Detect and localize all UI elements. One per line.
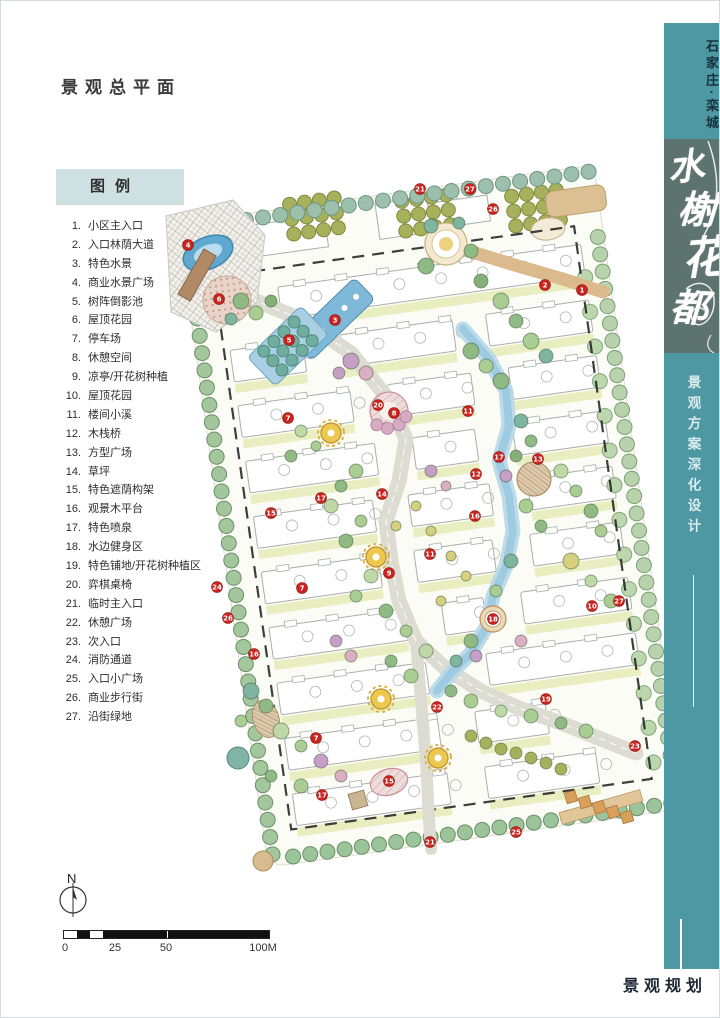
plan-markers: 1234567778910111112131415151616171717181… <box>183 184 641 848</box>
legend-title: 图例 <box>90 169 140 205</box>
svg-text:14: 14 <box>377 491 387 499</box>
legend-item: 7.停车场 <box>59 330 229 349</box>
plan-marker: 22 <box>432 702 443 713</box>
plan-marker: 11 <box>425 549 436 560</box>
svg-text:15: 15 <box>266 510 276 518</box>
legend-item: 22.休憩广场 <box>59 614 229 633</box>
scale-labels: 0 25 50 100M <box>1 942 301 956</box>
svg-text:17: 17 <box>316 495 326 503</box>
legend-list: 1.小区主入口2.入口林荫大道3.特色水景4.商业水景广场5.树阵倒影池6.屋顶… <box>59 217 229 727</box>
project-name-character: 榭 <box>677 190 717 230</box>
plan-marker: 5 <box>284 335 295 346</box>
legend-item: 1.小区主入口 <box>59 217 229 236</box>
plan-marker: 23 <box>630 741 641 752</box>
svg-text:12: 12 <box>471 471 481 479</box>
sidebar-location: 石家庄·栾城 <box>664 39 720 132</box>
svg-text:11: 11 <box>463 408 473 416</box>
svg-text:5: 5 <box>287 337 292 345</box>
svg-text:25: 25 <box>511 829 521 837</box>
legend-item: 8.休憩空间 <box>59 349 229 368</box>
svg-text:18: 18 <box>488 616 498 624</box>
svg-text:7: 7 <box>286 415 291 423</box>
legend-box: 图例 <box>56 169 184 205</box>
legend-item: 4.商业水景广场 <box>59 274 229 293</box>
svg-text:15: 15 <box>384 778 394 786</box>
north-arrow: N <box>57 873 97 919</box>
svg-text:22: 22 <box>432 704 442 712</box>
legend-item: 11.楼间小溪 <box>59 406 229 425</box>
svg-text:7: 7 <box>314 735 319 743</box>
plan-marker: 27 <box>614 596 625 607</box>
project-name-character: 花 <box>681 236 720 283</box>
svg-text:23: 23 <box>630 743 640 751</box>
svg-text:16: 16 <box>249 651 259 659</box>
scale-label: 0 <box>62 942 68 954</box>
legend-item: 17.特色喷泉 <box>59 519 229 538</box>
svg-text:17: 17 <box>317 792 327 800</box>
plan-marker: 25 <box>511 827 522 838</box>
sidebar-split-line <box>680 919 682 969</box>
project-name-character: 都 <box>669 288 708 327</box>
plan-marker: 2 <box>540 280 551 291</box>
svg-text:1: 1 <box>580 287 585 295</box>
svg-text:8: 8 <box>392 410 397 418</box>
compass-icon <box>57 873 97 919</box>
north-label: N <box>67 871 76 886</box>
legend-item: 25.入口小广场 <box>59 670 229 689</box>
legend-item: 2.入口林荫大道 <box>59 236 229 255</box>
site-rotated-group <box>150 149 692 878</box>
plan-marker: 7 <box>297 583 308 594</box>
plan-marker: 12 <box>471 469 482 480</box>
plan-marker: 17 <box>316 493 327 504</box>
legend-item: 15.特色遮荫构架 <box>59 481 229 500</box>
plan-marker: 15 <box>266 508 277 519</box>
plan-marker: 15 <box>384 776 395 787</box>
svg-text:20: 20 <box>373 402 383 410</box>
plan-marker: 21 <box>415 184 426 195</box>
scale-label: 25 <box>109 942 121 954</box>
sidebar-subtitle: 景观方案深化设计 <box>683 375 703 539</box>
scale-label: 100M <box>249 942 277 954</box>
legend-item: 21.临时主入口 <box>59 595 229 614</box>
sidebar: 石家庄·栾城 水榭花都 景观方案深化设计 <box>664 23 720 969</box>
svg-text:19: 19 <box>541 696 551 704</box>
plan-marker: 3 <box>330 315 341 326</box>
legend-item: 26.商业步行街 <box>59 689 229 708</box>
plan-marker: 17 <box>317 790 328 801</box>
footer-label: 景观规划 <box>623 972 707 996</box>
legend-item: 23.次入口 <box>59 633 229 652</box>
svg-text:21: 21 <box>425 839 435 847</box>
svg-text:17: 17 <box>494 454 504 462</box>
legend-item: 19.特色铺地/开花树种植区 <box>59 557 229 576</box>
legend-item: 18.水边健身区 <box>59 538 229 557</box>
plan-marker: 16 <box>470 511 481 522</box>
legend-item: 6.屋顶花园 <box>59 311 229 330</box>
page-title: 景观总平面 <box>61 73 181 98</box>
svg-text:16: 16 <box>470 513 480 521</box>
plan-marker: 26 <box>488 204 499 215</box>
svg-text:11: 11 <box>425 551 435 559</box>
legend-item: 14.草坪 <box>59 463 229 482</box>
legend-item: 13.方型广场 <box>59 444 229 463</box>
svg-text:3: 3 <box>333 317 338 325</box>
plan-marker: 9 <box>384 568 395 579</box>
plan-marker: 1 <box>577 285 588 296</box>
scale-label: 50 <box>160 942 172 954</box>
svg-text:10: 10 <box>587 603 597 611</box>
plan-marker: 16 <box>249 649 260 660</box>
legend-item: 27.沿街绿地 <box>59 708 229 727</box>
sidebar-project-panel: 水榭花都 <box>664 139 720 353</box>
legend-item: 5.树阵倒影池 <box>59 293 229 312</box>
svg-text:7: 7 <box>300 585 305 593</box>
plan-marker: 8 <box>389 408 400 419</box>
legend-item: 10.屋顶花园 <box>59 387 229 406</box>
plan-marker: 11 <box>463 406 474 417</box>
legend-item: 16.观景木平台 <box>59 500 229 519</box>
plan-marker: 19 <box>541 694 552 705</box>
svg-text:2: 2 <box>543 282 548 290</box>
plan-marker: 7 <box>311 733 322 744</box>
scale-bar <box>63 930 270 939</box>
svg-text:9: 9 <box>387 570 392 578</box>
project-name-character: 水 <box>666 147 706 187</box>
plan-marker: 21 <box>425 837 436 848</box>
plan-marker: 27 <box>465 184 476 195</box>
plan-marker: 7 <box>283 413 294 424</box>
legend-item: 20.弈棋桌椅 <box>59 576 229 595</box>
svg-text:13: 13 <box>533 456 543 464</box>
plan-marker: 10 <box>587 601 598 612</box>
legend-item: 24.消防通道 <box>59 651 229 670</box>
svg-text:27: 27 <box>465 186 475 194</box>
svg-text:27: 27 <box>614 598 624 606</box>
plan-marker: 13 <box>533 454 544 465</box>
legend-item: 9.凉亭/开花树种植 <box>59 368 229 387</box>
document-page: 景观总平面 图例 1.小区主入口2.入口林荫大道3.特色水景4.商业水景广场5.… <box>0 0 720 1018</box>
sidebar-divider <box>693 575 694 707</box>
plan-marker: 18 <box>488 614 499 625</box>
plan-marker: 14 <box>377 489 388 500</box>
legend-item: 3.特色水景 <box>59 255 229 274</box>
legend-item: 12.木栈桥 <box>59 425 229 444</box>
svg-text:26: 26 <box>488 206 498 214</box>
svg-text:21: 21 <box>415 186 425 194</box>
plan-marker: 20 <box>373 400 384 411</box>
plan-marker: 17 <box>494 452 505 463</box>
